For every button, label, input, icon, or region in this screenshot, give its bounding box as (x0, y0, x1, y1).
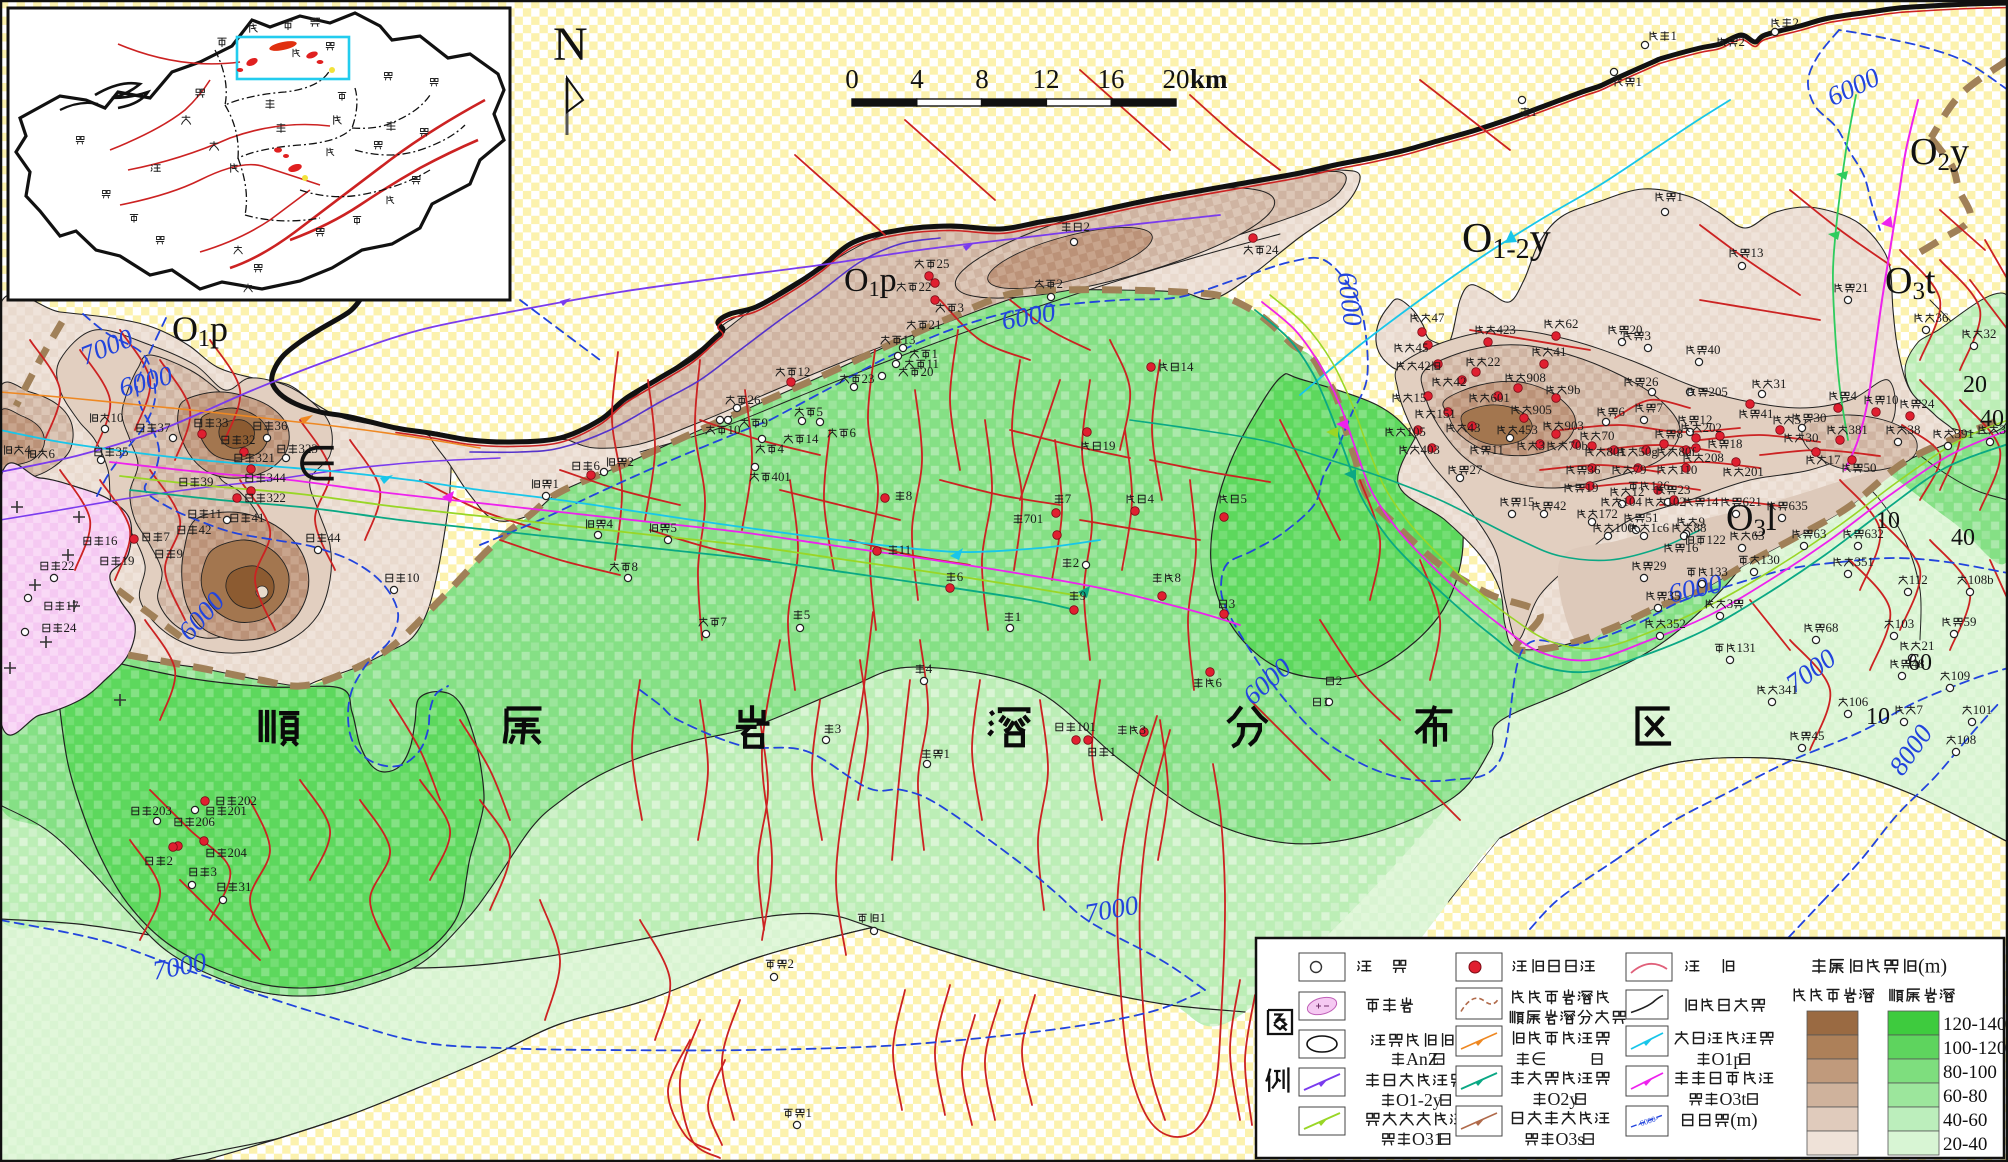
svg-text:41: 41 (1761, 407, 1774, 421)
svg-text:80-100: 80-100 (1943, 1062, 1997, 1083)
svg-text:19: 19 (1103, 439, 1116, 453)
svg-text:104: 104 (1623, 495, 1643, 509)
svg-text:6: 6 (594, 459, 601, 473)
svg-text:453: 453 (1519, 423, 1538, 437)
svg-text:108: 108 (1957, 733, 1976, 747)
svg-text:13: 13 (903, 333, 916, 347)
svg-text:31: 31 (1774, 377, 1787, 391)
svg-text:43: 43 (1468, 421, 1481, 435)
svg-text:40: 40 (1980, 406, 2004, 432)
svg-text:9: 9 (762, 416, 768, 430)
svg-text:401: 401 (772, 470, 791, 484)
svg-text:103: 103 (1895, 617, 1914, 631)
svg-text:8: 8 (975, 64, 989, 94)
svg-text:2: 2 (1336, 674, 1342, 688)
svg-text:5: 5 (1795, 413, 1801, 427)
svg-text:14: 14 (1706, 495, 1719, 509)
svg-text:63: 63 (1814, 527, 1827, 541)
svg-text:20-40: 20-40 (1943, 1134, 1987, 1155)
svg-text:206: 206 (196, 815, 216, 829)
svg-text:50g: 50g (1639, 445, 1659, 459)
svg-text:O1p: O1p (1712, 1049, 1743, 1069)
svg-text:126: 126 (1651, 479, 1671, 493)
svg-text:601: 601 (1491, 391, 1510, 405)
svg-text:2: 2 (1084, 220, 1090, 234)
svg-text:38: 38 (1908, 423, 1921, 437)
svg-text:101: 101 (1077, 720, 1096, 734)
svg-text:4: 4 (778, 442, 785, 456)
svg-text:29: 29 (1654, 559, 1667, 573)
svg-text:25: 25 (937, 257, 950, 271)
svg-text:22: 22 (919, 280, 932, 294)
svg-text:40: 40 (1708, 343, 1721, 357)
svg-text:341: 341 (1779, 683, 1798, 697)
svg-text:16: 16 (105, 534, 118, 548)
svg-text:9: 9 (177, 547, 183, 561)
svg-text:O3l: O3l (1726, 497, 1777, 542)
svg-text:7: 7 (1917, 703, 1924, 717)
svg-text:1: 1 (880, 911, 886, 925)
svg-text:110: 110 (1679, 463, 1698, 477)
svg-text:42: 42 (1454, 375, 1467, 389)
svg-text:905: 905 (1533, 403, 1552, 417)
svg-text:20: 20 (1163, 64, 1190, 94)
svg-text:133: 133 (1709, 565, 1728, 579)
svg-text:33: 33 (216, 416, 229, 430)
svg-text:100-120: 100-120 (1943, 1038, 2006, 1059)
svg-text:17: 17 (1828, 453, 1841, 467)
svg-text:14: 14 (1181, 360, 1194, 374)
svg-text:2: 2 (628, 455, 634, 469)
svg-text:7: 7 (721, 615, 728, 629)
svg-text:6: 6 (1619, 405, 1626, 419)
svg-text:36: 36 (1588, 463, 1601, 477)
svg-text:10: 10 (1876, 508, 1900, 534)
svg-text:635: 635 (1789, 499, 1808, 513)
svg-text:205: 205 (1709, 385, 1728, 399)
svg-text:3: 3 (1645, 329, 1651, 343)
svg-text:17: 17 (66, 599, 79, 613)
svg-text:3: 3 (1539, 439, 1545, 453)
svg-text:O3s: O3s (1556, 1129, 1585, 1149)
svg-text:10: 10 (407, 571, 420, 585)
svg-text:15: 15 (1522, 495, 1535, 509)
svg-text:20: 20 (1630, 323, 1643, 337)
svg-text:102: 102 (1667, 495, 1686, 509)
svg-text:3: 3 (1727, 597, 1733, 611)
svg-text:11: 11 (210, 507, 222, 521)
svg-text:41: 41 (252, 511, 265, 525)
svg-text:(m): (m) (1730, 1110, 1757, 1131)
svg-text:30: 30 (1806, 431, 1819, 445)
svg-text:39: 39 (201, 475, 214, 489)
svg-text:8: 8 (632, 560, 638, 574)
svg-text:1: 1 (1671, 29, 1677, 43)
svg-text:201: 201 (1745, 465, 1764, 479)
svg-text:O3t: O3t (1885, 260, 1936, 305)
svg-text:2: 2 (167, 854, 173, 868)
svg-text:40-60: 40-60 (1943, 1110, 1987, 1131)
svg-text:20: 20 (1963, 372, 1987, 398)
svg-text:O3t: O3t (1720, 1089, 1747, 1109)
svg-text:131: 131 (1737, 641, 1756, 655)
svg-text:322: 322 (267, 491, 286, 505)
svg-text:2: 2 (1739, 35, 1745, 49)
svg-text:32: 32 (1984, 327, 1997, 341)
svg-text:23: 23 (862, 372, 875, 386)
svg-text:101: 101 (1973, 703, 1992, 717)
svg-text:903: 903 (1565, 419, 1584, 433)
svg-text:12: 12 (1033, 64, 1060, 94)
svg-text:45: 45 (1416, 341, 1429, 355)
svg-text:20: 20 (921, 365, 934, 379)
svg-text:80f: 80f (1679, 445, 1697, 459)
svg-text:109: 109 (1951, 669, 1970, 683)
svg-text:70: 70 (1602, 429, 1615, 443)
svg-text:6: 6 (957, 570, 964, 584)
svg-text:30: 30 (1814, 411, 1827, 425)
svg-text:1: 1 (806, 1106, 812, 1120)
svg-text:62: 62 (1566, 317, 1579, 331)
svg-text:7: 7 (1657, 401, 1664, 415)
svg-text:8: 8 (1175, 571, 1181, 585)
svg-text:41: 41 (1554, 345, 1567, 359)
svg-text:3: 3 (835, 722, 841, 736)
svg-text:10: 10 (1866, 704, 1890, 730)
svg-text:2: 2 (1793, 16, 1799, 30)
svg-text:6: 6 (49, 447, 56, 461)
svg-text:4: 4 (926, 662, 933, 676)
svg-text:60: 60 (1908, 650, 1932, 676)
svg-text:88: 88 (1694, 521, 1707, 535)
svg-text:16: 16 (1098, 64, 1125, 94)
svg-text:79: 79 (1634, 463, 1647, 477)
svg-text:27: 27 (1470, 463, 1483, 477)
svg-text:10: 10 (111, 411, 124, 425)
svg-text:5: 5 (1241, 492, 1247, 506)
svg-text:26: 26 (1646, 375, 1659, 389)
svg-text:22: 22 (62, 559, 75, 573)
svg-text:4: 4 (1851, 389, 1858, 403)
svg-text:201: 201 (228, 804, 247, 818)
svg-text:208: 208 (1705, 451, 1724, 465)
svg-text:352: 352 (1667, 617, 1686, 631)
svg-text:N: N (553, 18, 588, 71)
svg-text:32: 32 (243, 433, 256, 447)
svg-text:1: 1 (1323, 695, 1329, 709)
svg-text:3: 3 (211, 865, 217, 879)
svg-text:1: 1 (944, 747, 950, 761)
svg-text:km: km (1190, 64, 1228, 94)
svg-text:321: 321 (256, 451, 275, 465)
svg-text:45: 45 (1812, 729, 1825, 743)
svg-text:12: 12 (798, 365, 811, 379)
svg-text:50: 50 (1864, 461, 1877, 475)
svg-text:9: 9 (1080, 589, 1086, 603)
svg-text:908: 908 (1527, 371, 1546, 385)
svg-text:1: 1 (1531, 105, 1537, 119)
svg-text:391: 391 (1955, 427, 1974, 441)
svg-text:4: 4 (910, 64, 924, 94)
svg-text:172: 172 (1599, 507, 1618, 521)
svg-text:15: 15 (1414, 391, 1427, 405)
svg-text:∈: ∈ (1531, 1049, 1547, 1069)
svg-text:19: 19 (122, 554, 135, 568)
svg-text:42: 42 (1554, 499, 1567, 513)
svg-text:AnZ: AnZ (1406, 1049, 1439, 1069)
svg-text:122: 122 (1707, 533, 1726, 547)
svg-text:6: 6 (1216, 676, 1223, 690)
svg-text:37: 37 (158, 421, 171, 435)
svg-text:13: 13 (1751, 246, 1764, 260)
svg-text:35: 35 (116, 445, 129, 459)
svg-text:344: 344 (267, 471, 287, 485)
svg-text:1: 1 (1110, 745, 1116, 759)
svg-text:7: 7 (164, 530, 171, 544)
svg-text:47: 47 (1432, 311, 1445, 325)
svg-text:4: 4 (1148, 492, 1155, 506)
svg-text:10: 10 (1886, 393, 1899, 407)
svg-text:36: 36 (1936, 311, 1949, 325)
svg-text:70b: 70b (1569, 439, 1588, 453)
svg-text:202: 202 (1703, 421, 1722, 435)
svg-text:3: 3 (1229, 597, 1235, 611)
svg-text:(m): (m) (1918, 956, 1947, 978)
svg-text:1c6: 1c6 (1651, 521, 1670, 535)
svg-text:5: 5 (817, 405, 823, 419)
svg-text:18: 18 (1730, 437, 1743, 451)
svg-text:42: 42 (199, 523, 212, 537)
svg-text:22: 22 (1488, 355, 1501, 369)
svg-text:26: 26 (748, 393, 761, 407)
svg-text:403: 403 (1421, 443, 1440, 457)
svg-text:11: 11 (1492, 443, 1504, 457)
svg-text:59: 59 (1964, 615, 1977, 629)
svg-text:35: 35 (1668, 589, 1681, 603)
svg-text:O31: O31 (1412, 1129, 1443, 1149)
svg-text:2: 2 (788, 957, 794, 971)
svg-text:11: 11 (899, 543, 911, 557)
svg-text:5: 5 (671, 521, 677, 535)
svg-text:423: 423 (1497, 323, 1516, 337)
svg-text:1: 1 (1015, 610, 1021, 624)
svg-text:68: 68 (1826, 621, 1839, 635)
svg-text:203: 203 (153, 804, 172, 818)
svg-text:10: 10 (728, 423, 741, 437)
svg-text:21: 21 (929, 318, 942, 332)
svg-text:6: 6 (850, 426, 857, 440)
svg-text:120-140: 120-140 (1943, 1014, 2006, 1035)
svg-text:0: 0 (845, 64, 859, 94)
svg-text:2: 2 (1057, 277, 1063, 291)
svg-text:105: 105 (1407, 425, 1426, 439)
svg-text:4: 4 (607, 517, 614, 531)
svg-text:24: 24 (1922, 397, 1935, 411)
svg-text:351: 351 (1855, 555, 1874, 569)
svg-text:1: 1 (553, 477, 559, 491)
svg-text:24: 24 (1266, 243, 1279, 257)
svg-text:1: 1 (1677, 190, 1683, 204)
svg-text:44: 44 (328, 531, 341, 545)
svg-text:21: 21 (1856, 281, 1869, 295)
svg-text:8: 8 (906, 489, 912, 503)
svg-text:O2y: O2y (1548, 1089, 1579, 1109)
svg-text:3: 3 (958, 301, 964, 315)
svg-text:16: 16 (1686, 541, 1699, 555)
svg-text:9b: 9b (1568, 383, 1581, 397)
svg-text:7: 7 (1065, 492, 1072, 506)
svg-text:2: 2 (1073, 556, 1079, 570)
svg-text:100: 100 (1615, 521, 1634, 535)
svg-text:151: 151 (1437, 407, 1456, 421)
svg-text:40: 40 (1951, 525, 1975, 551)
svg-text:14: 14 (806, 432, 819, 446)
svg-text:112: 112 (1909, 573, 1928, 587)
svg-text:O1-2y: O1-2y (1396, 1090, 1442, 1110)
svg-text:36: 36 (275, 419, 288, 433)
svg-text:31: 31 (239, 880, 252, 894)
svg-text:204: 204 (228, 846, 248, 860)
svg-text:3: 3 (1140, 723, 1146, 737)
svg-text:∈: ∈ (296, 438, 338, 491)
svg-text:19: 19 (1586, 481, 1599, 495)
svg-text:108b: 108b (1968, 573, 1994, 587)
svg-text:701: 701 (1024, 512, 1043, 526)
svg-text:381: 381 (1849, 423, 1868, 437)
svg-text:60-80: 60-80 (1943, 1086, 1987, 1107)
svg-text:42: 42 (1418, 359, 1431, 373)
svg-text:130: 130 (1761, 553, 1780, 567)
svg-text:1: 1 (1636, 75, 1642, 89)
svg-text:24: 24 (64, 621, 77, 635)
svg-text:5: 5 (804, 608, 810, 622)
